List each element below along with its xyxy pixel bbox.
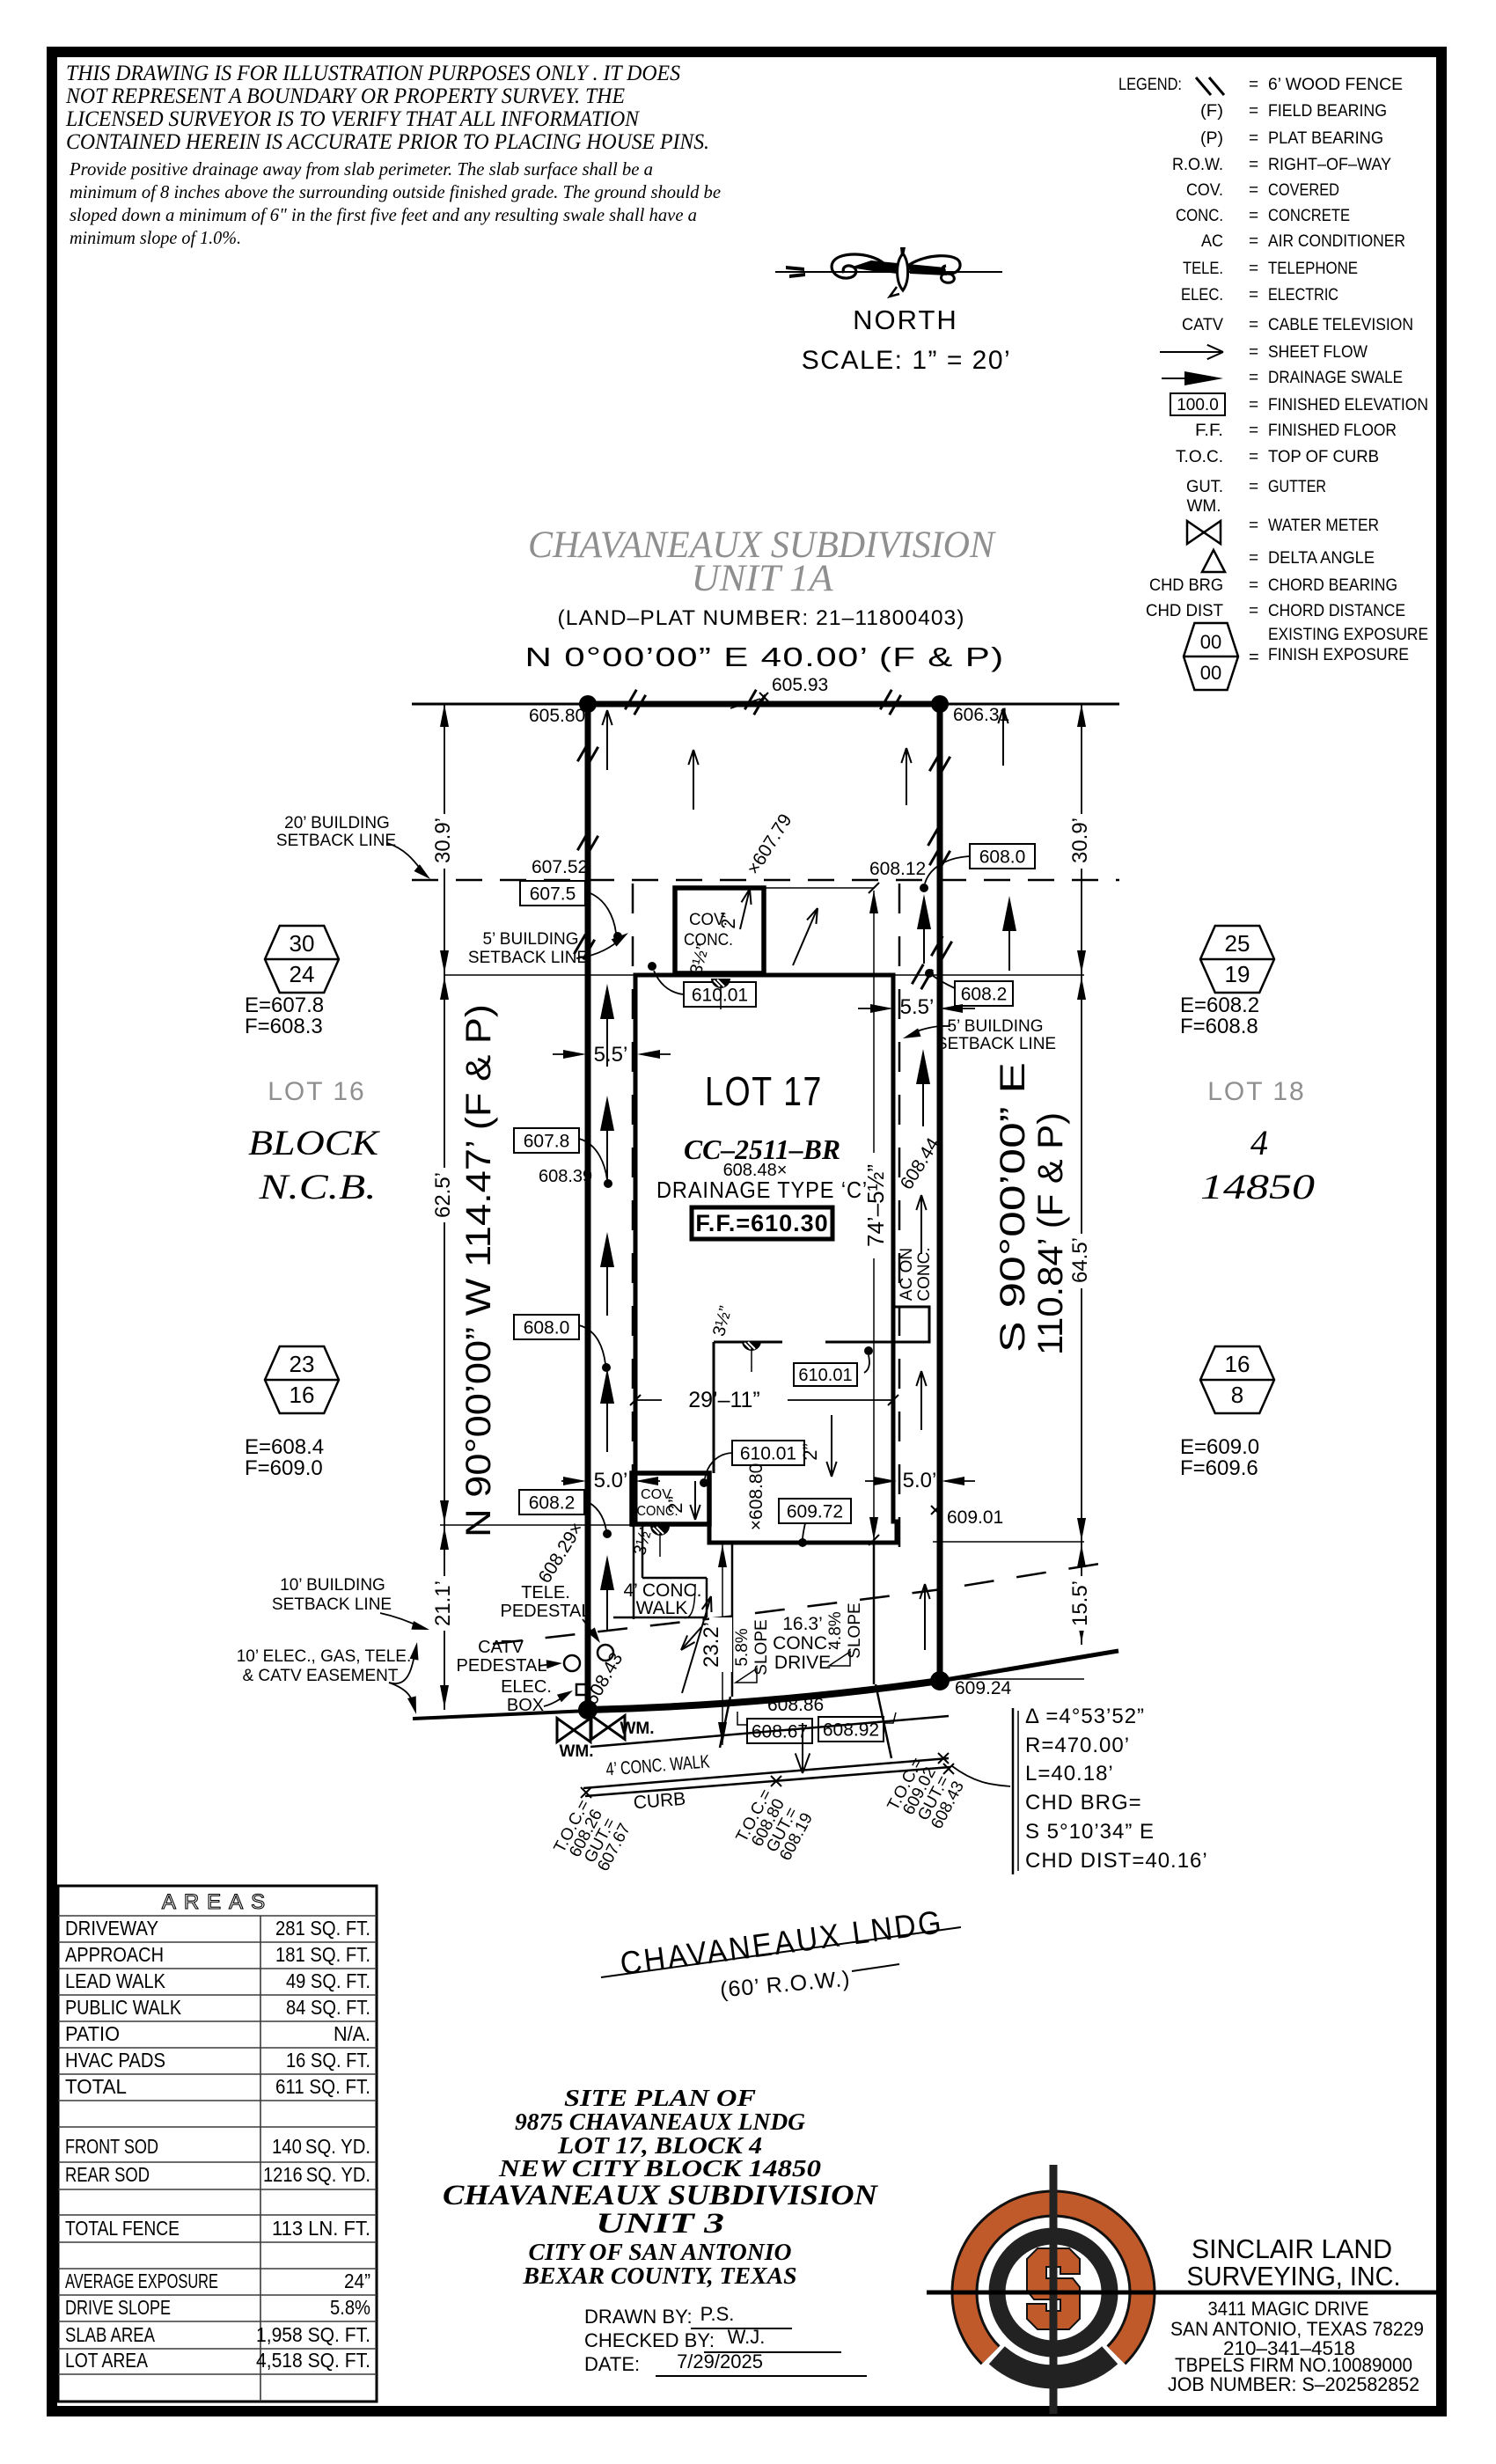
svg-text:REAR SOD: REAR SOD <box>65 2163 150 2186</box>
svg-text:LICENSED SURVEYOR IS TO VERIFY: LICENSED SURVEYOR IS TO VERIFY THAT ALL … <box>65 107 640 131</box>
svg-text:CONC.: CONC. <box>773 1633 832 1654</box>
svg-text:LEGEND:: LEGEND: <box>1118 76 1182 94</box>
svg-text:WM.: WM. <box>620 1720 654 1738</box>
svg-text:15.5’: 15.5’ <box>1068 1580 1092 1626</box>
svg-text:SURVEYING, INC.: SURVEYING, INC. <box>1187 2261 1401 2292</box>
svg-text:DATE:: DATE: <box>584 2353 640 2375</box>
svg-text:AVERAGE EXPOSURE: AVERAGE EXPOSURE <box>65 2270 218 2292</box>
svg-text:E=607.8: E=607.8 <box>245 994 324 1017</box>
svg-text:CHD DIST=40.16’: CHD DIST=40.16’ <box>1025 1849 1208 1873</box>
svg-text:SLOPE: SLOPE <box>752 1619 771 1675</box>
svg-text:E=609.0: E=609.0 <box>1180 1435 1259 1459</box>
svg-text:N 0°00’00” E 40.00’ (F &: N 0°00’00” E 40.00’ (F & P) <box>525 642 1005 672</box>
svg-text:25: 25 <box>1225 930 1250 957</box>
svg-text:JOB NUMBER: S–202582852: JOB NUMBER: S–202582852 <box>1168 2373 1419 2395</box>
svg-text:30: 30 <box>290 930 315 957</box>
svg-text:GUT.: GUT. <box>1186 478 1223 496</box>
svg-text:DRIVE SLOPE: DRIVE SLOPE <box>65 2296 171 2319</box>
svg-text:CHAVANEAUX SUBDIVISION: CHAVANEAUX SUBDIVISION <box>443 2180 878 2211</box>
svg-text:L=40.18’: L=40.18’ <box>1025 1762 1114 1786</box>
svg-text:minimum of 8 inches above the: minimum of 8 inches above the surroundin… <box>70 181 721 202</box>
svg-text:ELEC.: ELEC. <box>1181 286 1223 304</box>
svg-text:=: = <box>1249 181 1258 200</box>
svg-text:CABLE TELEVISION: CABLE TELEVISION <box>1268 316 1413 334</box>
svg-text:113 LN. FT.: 113 LN. FT. <box>272 2217 370 2240</box>
svg-text:=: = <box>1249 478 1258 496</box>
svg-text:SHEET FLOW: SHEET FLOW <box>1268 343 1368 362</box>
svg-text:TELEPHONE: TELEPHONE <box>1268 260 1358 278</box>
svg-text:64.5’: 64.5’ <box>1068 1237 1092 1283</box>
svg-text:1216 SQ. YD.: 1216 SQ. YD. <box>263 2163 370 2186</box>
svg-text:R=470.00’: R=470.00’ <box>1025 1734 1130 1757</box>
svg-text:NOT REPRESENT A BOUNDARY OR PR: NOT REPRESENT A BOUNDARY OR PROPERTY SUR… <box>65 84 625 108</box>
svg-text:608.86: 608.86 <box>767 1695 824 1715</box>
svg-text:5’ BUILDING: 5’ BUILDING <box>482 930 578 949</box>
svg-text:R.O.W.: R.O.W. <box>1172 156 1223 174</box>
svg-text:607.5: 607.5 <box>530 884 576 904</box>
svg-text:PEDESTAL: PEDESTAL <box>501 1602 591 1621</box>
svg-text:PATIO: PATIO <box>65 2022 120 2045</box>
svg-text:DRAINAGE SWALE: DRAINAGE SWALE <box>1268 369 1403 387</box>
svg-text:CHECKED BY:: CHECKED BY: <box>584 2329 715 2351</box>
svg-text:608.0: 608.0 <box>524 1317 570 1338</box>
svg-text:=: = <box>1249 602 1258 620</box>
svg-text:FRONT SOD: FRONT SOD <box>65 2135 158 2158</box>
svg-text:62.5’: 62.5’ <box>431 1172 455 1218</box>
svg-text:CHD BRG=: CHD BRG= <box>1025 1791 1142 1815</box>
svg-text:SETBACK LINE: SETBACK LINE <box>468 949 588 967</box>
svg-text:×608.80: ×608.80 <box>746 1463 766 1531</box>
svg-text:TOP OF CURB: TOP OF CURB <box>1268 448 1379 466</box>
svg-text:610.01: 610.01 <box>740 1443 796 1463</box>
svg-text:20’ BUILDING: 20’ BUILDING <box>284 814 390 832</box>
svg-text:608.92: 608.92 <box>823 1720 879 1740</box>
svg-text:=: = <box>1249 343 1258 362</box>
svg-text:30.9’: 30.9’ <box>1068 818 1092 863</box>
svg-text:608.12: 608.12 <box>869 859 926 879</box>
svg-text:EXISTING EXPOSURE: EXISTING EXPOSURE <box>1268 626 1428 644</box>
svg-text:WM.: WM. <box>559 1742 593 1761</box>
svg-text:FIELD BEARING: FIELD BEARING <box>1268 102 1387 121</box>
svg-text:5.0’: 5.0’ <box>903 1469 937 1492</box>
svg-text:DRAINAGE TYPE ‘C’: DRAINAGE TYPE ‘C’ <box>656 1177 868 1203</box>
svg-text:=: = <box>1249 517 1258 535</box>
svg-text:THIS DRAWING IS FOR ILLUSTRATI: THIS DRAWING IS FOR ILLUSTRATION PURPOSE… <box>66 62 680 85</box>
svg-text:608.39: 608.39 <box>539 1167 592 1186</box>
svg-text:16 SQ. FT.: 16 SQ. FT. <box>286 2049 370 2072</box>
svg-text:NEW CITY BLOCK 14850: NEW CITY BLOCK 14850 <box>498 2155 822 2182</box>
svg-text:AREAS: AREAS <box>162 1890 273 1914</box>
svg-text:CHORD DISTANCE: CHORD DISTANCE <box>1268 602 1405 620</box>
svg-text:3411 MAGIC DRIVE: 3411 MAGIC DRIVE <box>1208 2298 1369 2320</box>
svg-text:N.C.B.: N.C.B. <box>258 1167 376 1206</box>
svg-text:PEDESTAL: PEDESTAL <box>457 1656 547 1676</box>
svg-text:=: = <box>1249 102 1258 121</box>
svg-text:=: = <box>1249 156 1258 174</box>
svg-text:F=609.0: F=609.0 <box>245 1456 323 1480</box>
svg-text:4: 4 <box>1250 1123 1268 1162</box>
svg-text:9875 CHAVANEAUX LNDG: 9875 CHAVANEAUX LNDG <box>515 2108 806 2135</box>
svg-text:=: = <box>1249 648 1259 667</box>
svg-text:GUTTER: GUTTER <box>1268 478 1326 496</box>
svg-text:608.67: 608.67 <box>752 1721 808 1742</box>
svg-text:WALK: WALK <box>636 1598 688 1618</box>
svg-text:611 SQ. FT.: 611 SQ. FT. <box>275 2075 370 2098</box>
svg-text:609.24: 609.24 <box>955 1678 1012 1698</box>
svg-text:=: = <box>1249 129 1258 148</box>
svg-text:DELTA ANGLE: DELTA ANGLE <box>1268 549 1375 568</box>
svg-text:LOT 16: LOT 16 <box>268 1077 366 1106</box>
svg-text:=: = <box>1249 232 1258 251</box>
svg-text:=: = <box>1249 422 1258 440</box>
svg-text:23.2’: 23.2’ <box>700 1622 723 1668</box>
svg-text:NORTH: NORTH <box>853 304 958 335</box>
svg-text:F.F.: F.F. <box>1195 422 1223 440</box>
svg-text:5.5’: 5.5’ <box>900 995 935 1019</box>
svg-text:140 SQ. YD.: 140 SQ. YD. <box>272 2135 370 2158</box>
svg-text:23: 23 <box>290 1351 315 1377</box>
svg-text:Δ =4°53’52”: Δ =4°53’52” <box>1025 1705 1145 1728</box>
svg-text:610.01: 610.01 <box>798 1366 852 1385</box>
svg-text:=: = <box>1249 316 1258 334</box>
svg-text:LOT AREA: LOT AREA <box>65 2349 149 2372</box>
svg-text:WATER METER: WATER METER <box>1268 517 1379 535</box>
svg-text:ELEC.: ELEC. <box>501 1677 552 1697</box>
svg-text:=: = <box>1249 369 1258 387</box>
svg-text:S 5°10’34” E: S 5°10’34” E <box>1025 1820 1155 1844</box>
svg-text:SETBACK LINE: SETBACK LINE <box>276 832 396 850</box>
svg-text:T.O.C.: T.O.C. <box>1176 448 1223 466</box>
svg-text:CHD BRG: CHD BRG <box>1149 576 1223 595</box>
svg-text:BEXAR COUNTY, TEXAS: BEXAR COUNTY, TEXAS <box>522 2262 796 2289</box>
svg-text:LEAD WALK: LEAD WALK <box>65 1969 166 1992</box>
svg-text:UNIT 1A: UNIT 1A <box>692 558 834 599</box>
svg-text:E=608.4: E=608.4 <box>245 1435 324 1459</box>
svg-text:SLAB AREA: SLAB AREA <box>65 2323 156 2346</box>
svg-text:4.8%: 4.8% <box>826 1611 845 1649</box>
svg-text:5.8%: 5.8% <box>733 1628 752 1666</box>
svg-text:SITE PLAN OF: SITE PLAN OF <box>564 2085 756 2111</box>
svg-text:609.72: 609.72 <box>787 1501 843 1522</box>
svg-text:LOT 18: LOT 18 <box>1207 1077 1306 1106</box>
svg-text:COV.: COV. <box>1186 181 1223 200</box>
svg-text:CHD DIST: CHD DIST <box>1146 602 1223 620</box>
svg-text:607.8: 607.8 <box>524 1131 570 1151</box>
svg-text:CONC.: CONC. <box>1176 207 1223 225</box>
svg-text:BOX: BOX <box>507 1696 544 1715</box>
svg-text:TOTAL FENCE: TOTAL FENCE <box>65 2217 180 2240</box>
svg-text:5.0’: 5.0’ <box>594 1469 628 1492</box>
svg-text:APPROACH: APPROACH <box>65 1943 164 1966</box>
svg-text:E=608.2: E=608.2 <box>1180 994 1259 1017</box>
svg-text:COVERED: COVERED <box>1268 181 1339 200</box>
svg-text:607.52: 607.52 <box>532 857 588 877</box>
svg-text:8: 8 <box>1231 1382 1243 1408</box>
svg-text:24: 24 <box>290 961 315 987</box>
svg-text:16: 16 <box>1225 1351 1250 1377</box>
svg-text:24”: 24” <box>344 2270 370 2292</box>
svg-text:SCALE: 1” = 20’: SCALE: 1” = 20’ <box>802 346 1011 375</box>
svg-text:1,958 SQ. FT.: 1,958 SQ. FT. <box>256 2323 370 2346</box>
svg-text:19: 19 <box>1225 961 1250 987</box>
svg-text:605.80: 605.80 <box>529 706 585 726</box>
svg-text:sloped down a minimum of 6" in: sloped down a minimum of 6" in the first… <box>70 204 697 225</box>
svg-text:=: = <box>1249 207 1258 225</box>
svg-text:F=609.6: F=609.6 <box>1180 1456 1258 1480</box>
svg-text:5.8%: 5.8% <box>330 2296 370 2319</box>
svg-text:100.0: 100.0 <box>1177 396 1219 414</box>
svg-text:609.01: 609.01 <box>947 1507 1003 1528</box>
svg-text:CURB: CURB <box>633 1789 686 1814</box>
svg-text:TELE.: TELE. <box>521 1583 570 1602</box>
svg-text:COV.: COV. <box>641 1487 674 1502</box>
svg-text:LOT 17: LOT 17 <box>705 1068 823 1114</box>
svg-text:605.93: 605.93 <box>772 675 828 695</box>
svg-text:WM.: WM. <box>1186 497 1221 516</box>
svg-text:21.1’: 21.1’ <box>431 1580 455 1626</box>
svg-text:AC ON: AC ON <box>898 1248 916 1301</box>
svg-text:SLOPE: SLOPE <box>846 1602 864 1658</box>
svg-text:W.J.: W.J. <box>728 2326 766 2348</box>
svg-text:SETBACK LINE: SETBACK LINE <box>272 1595 392 1614</box>
svg-text:N 90°00’00” W 114.47’ (F: N 90°00’00” W 114.47’ (F & P) <box>459 1004 498 1537</box>
svg-text:COV.: COV. <box>689 911 728 929</box>
svg-text:30.9’: 30.9’ <box>431 818 455 863</box>
svg-text:CONC.: CONC. <box>637 1504 678 1519</box>
svg-text:DRAWN BY:: DRAWN BY: <box>584 2306 693 2328</box>
svg-text:608.2: 608.2 <box>961 984 1008 1004</box>
svg-text:FINISHED FLOOR: FINISHED FLOOR <box>1268 422 1397 440</box>
svg-text:281 SQ. FT.: 281 SQ. FT. <box>275 1917 370 1940</box>
svg-text:AIR CONDITIONER: AIR CONDITIONER <box>1268 232 1405 251</box>
svg-text:CONCRETE: CONCRETE <box>1268 207 1350 225</box>
svg-text:SETBACK LINE: SETBACK LINE <box>936 1035 1056 1053</box>
svg-text:minimum slope of 1.0%.: minimum slope of 1.0%. <box>70 227 241 248</box>
svg-text:F=608.3: F=608.3 <box>245 1015 323 1038</box>
svg-text:16.3’: 16.3’ <box>782 1614 823 1634</box>
svg-text:84 SQ. FT.: 84 SQ. FT. <box>286 1996 370 2019</box>
svg-text:608.0: 608.0 <box>979 847 1026 867</box>
svg-text:AC: AC <box>1201 232 1223 251</box>
svg-text:CITY OF SAN ANTONIO: CITY OF SAN ANTONIO <box>529 2239 792 2265</box>
svg-text:00: 00 <box>1200 631 1221 653</box>
svg-text:BLOCK: BLOCK <box>248 1123 381 1162</box>
svg-text:29’–11”: 29’–11” <box>688 1388 760 1412</box>
svg-text:TELE.: TELE. <box>1183 260 1223 278</box>
svg-text:4,518 SQ. FT.: 4,518 SQ. FT. <box>256 2349 370 2372</box>
svg-text:16: 16 <box>290 1382 315 1408</box>
svg-text:=: = <box>1249 576 1258 595</box>
svg-text:PUBLIC WALK: PUBLIC WALK <box>65 1996 182 2019</box>
svg-text:RIGHT–OF–WAY: RIGHT–OF–WAY <box>1268 156 1391 174</box>
svg-text:CATV: CATV <box>1182 316 1223 334</box>
svg-text:ELECTRIC: ELECTRIC <box>1268 286 1338 304</box>
svg-text:S 90°00’00” E: S 90°00’00” E <box>994 1062 1032 1353</box>
svg-text:CONTAINED HEREIN IS ACCURATE P: CONTAINED HEREIN IS ACCURATE PRIOR TO PL… <box>66 130 709 154</box>
svg-text:CHORD BEARING: CHORD BEARING <box>1268 576 1397 595</box>
svg-text:FINISH EXPOSURE: FINISH EXPOSURE <box>1268 646 1409 664</box>
svg-text:14850: 14850 <box>1200 1167 1315 1206</box>
svg-text:181 SQ. FT.: 181 SQ. FT. <box>275 1943 370 1966</box>
svg-text:5’ BUILDING: 5’ BUILDING <box>947 1017 1043 1036</box>
svg-text:6’ WOOD FENCE: 6’ WOOD FENCE <box>1268 76 1403 94</box>
svg-text:F=608.8: F=608.8 <box>1180 1015 1258 1038</box>
svg-text:& CATV EASEMENT: & CATV EASEMENT <box>242 1667 398 1685</box>
svg-text:F.F.=610.30: F.F.=610.30 <box>695 1210 828 1236</box>
svg-text:=: = <box>1249 260 1258 278</box>
svg-text:=: = <box>1249 286 1258 304</box>
svg-text:PLAT BEARING: PLAT BEARING <box>1268 129 1383 148</box>
svg-text:10’ BUILDING: 10’ BUILDING <box>280 1576 385 1595</box>
svg-text:=: = <box>1249 76 1258 94</box>
svg-text:=: = <box>1249 396 1258 414</box>
svg-text:P.S.: P.S. <box>700 2303 735 2325</box>
svg-text:=: = <box>1249 448 1258 466</box>
svg-text:TOTAL: TOTAL <box>65 2075 127 2098</box>
svg-text:HVAC PADS: HVAC PADS <box>65 2049 165 2072</box>
svg-text:Provide positive drainage away: Provide positive drainage away from slab… <box>69 158 653 180</box>
svg-text:608.2: 608.2 <box>529 1492 576 1513</box>
svg-text:(F): (F) <box>1200 102 1223 121</box>
svg-text:2”: 2” <box>799 1443 821 1461</box>
svg-text:10’ ELEC., GAS, TELE.: 10’ ELEC., GAS, TELE. <box>237 1647 412 1666</box>
svg-text:CONC.: CONC. <box>915 1247 934 1301</box>
svg-text:110.84’ (F & P): 110.84’ (F & P) <box>1031 1112 1070 1355</box>
svg-text:(LAND–PLAT NUMBER: 21–1180040: (LAND–PLAT NUMBER: 21–11800403) <box>558 606 965 630</box>
svg-text:N/A.: N/A. <box>334 2022 370 2045</box>
svg-text:UNIT 3: UNIT 3 <box>596 2208 724 2240</box>
svg-text:00: 00 <box>1200 662 1221 684</box>
svg-text:=: = <box>1249 549 1258 568</box>
svg-text:(P): (P) <box>1200 129 1223 148</box>
svg-text:DRIVE: DRIVE <box>774 1653 831 1673</box>
svg-text:FINISHED ELEVATION: FINISHED ELEVATION <box>1268 396 1428 414</box>
svg-text:DRIVEWAY: DRIVEWAY <box>65 1917 158 1940</box>
svg-text:CATV: CATV <box>478 1638 524 1657</box>
svg-text:5.5’: 5.5’ <box>594 1043 628 1067</box>
svg-text:7/29/2025: 7/29/2025 <box>677 2350 763 2372</box>
svg-text:CONC.: CONC. <box>684 931 733 950</box>
svg-text:49 SQ. FT.: 49 SQ. FT. <box>286 1969 370 1992</box>
svg-text:SINCLAIR LAND: SINCLAIR LAND <box>1192 2233 1392 2264</box>
